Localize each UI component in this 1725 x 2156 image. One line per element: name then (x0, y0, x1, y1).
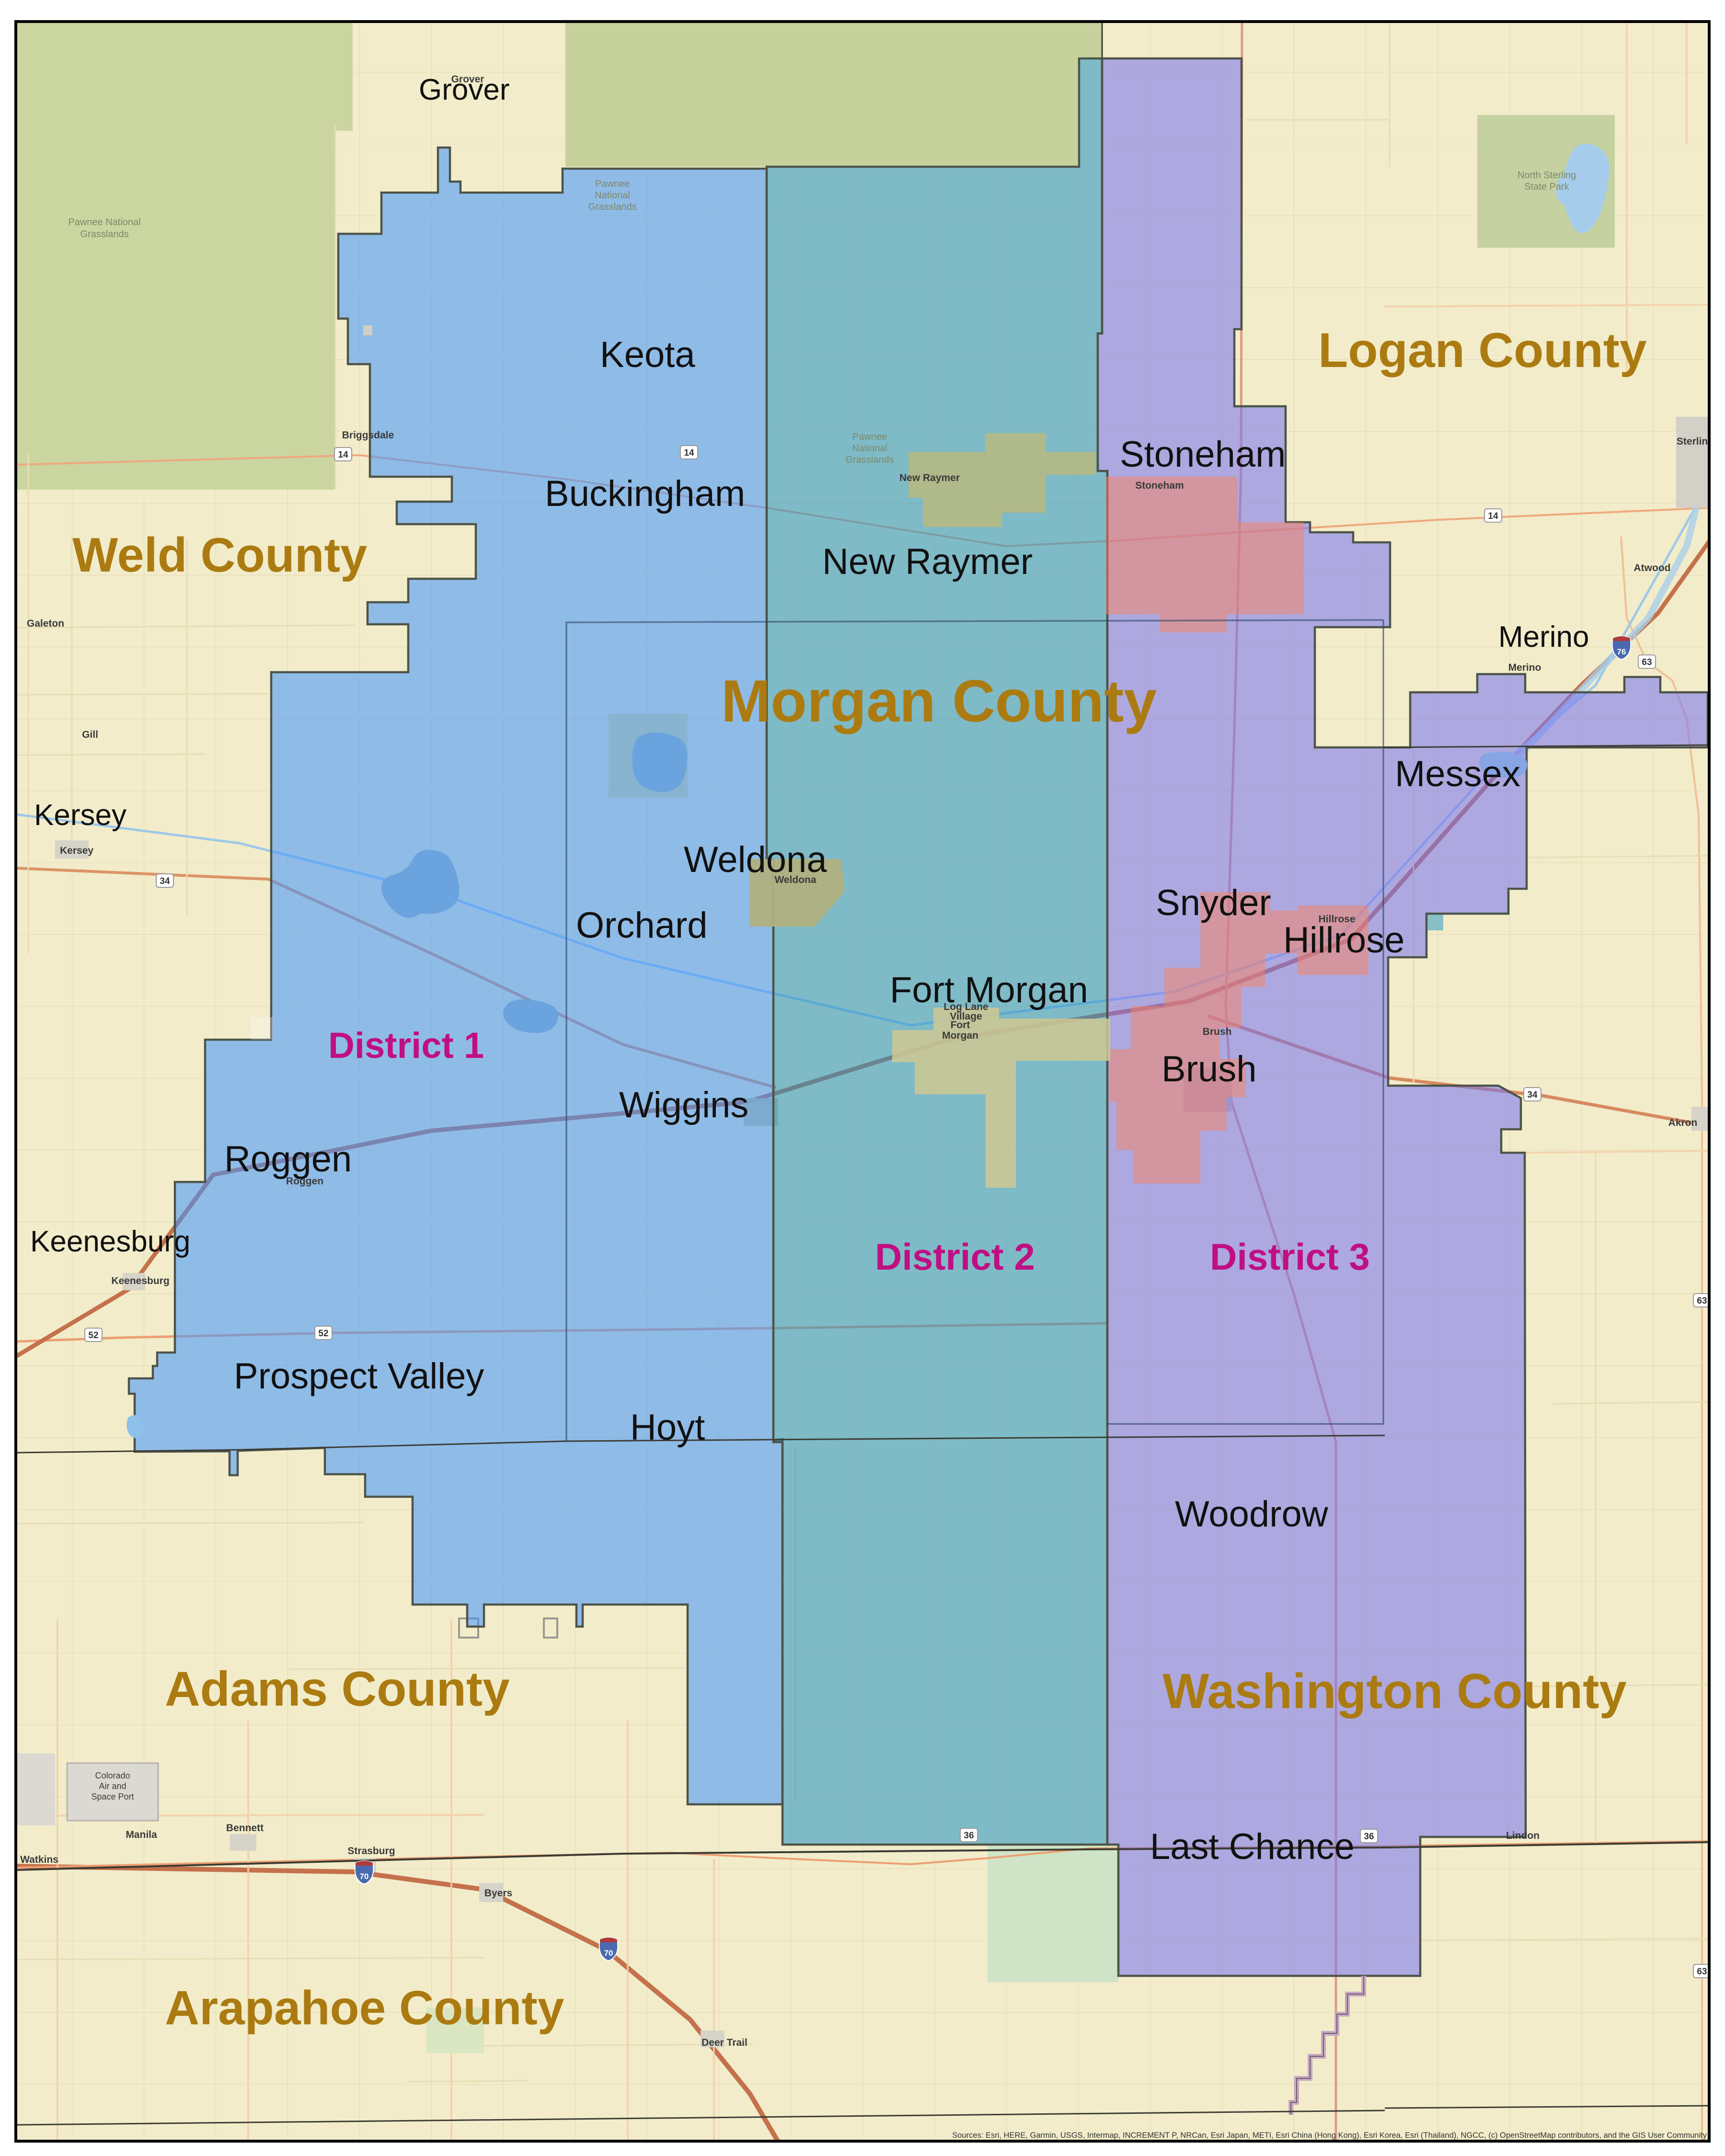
svg-text:63: 63 (1697, 1296, 1707, 1306)
svg-text:Pawnee: Pawnee (852, 432, 887, 442)
svg-text:Space Port: Space Port (91, 1792, 134, 1801)
svg-text:34: 34 (1527, 1090, 1538, 1100)
svg-text:Pawnee: Pawnee (595, 179, 630, 189)
svg-text:Brush: Brush (1203, 1026, 1232, 1037)
svg-text:Hoyt: Hoyt (630, 1407, 705, 1448)
svg-text:14: 14 (684, 448, 694, 458)
svg-text:Logan County: Logan County (1318, 323, 1647, 378)
svg-text:Gill: Gill (82, 729, 98, 740)
svg-text:Galeton: Galeton (27, 618, 64, 629)
svg-text:Grasslands: Grasslands (80, 229, 128, 240)
svg-text:Grasslands: Grasslands (588, 202, 636, 212)
svg-text:Merino: Merino (1508, 662, 1541, 673)
svg-text:Washington County: Washington County (1162, 1663, 1627, 1719)
svg-text:52: 52 (318, 1329, 328, 1339)
svg-text:63: 63 (1697, 1967, 1707, 1977)
svg-text:Watkins: Watkins (20, 1854, 58, 1865)
svg-text:Adams County: Adams County (165, 1662, 510, 1716)
svg-text:Keenesburg: Keenesburg (30, 1225, 190, 1258)
svg-text:National: National (852, 443, 887, 454)
svg-text:Stoneham: Stoneham (1120, 434, 1286, 475)
svg-text:Morgan: Morgan (942, 1030, 978, 1041)
svg-text:Wiggins: Wiggins (619, 1085, 748, 1125)
svg-text:Hillrose: Hillrose (1318, 914, 1355, 925)
svg-text:Keota: Keota (600, 334, 695, 375)
svg-text:Air and: Air and (99, 1781, 126, 1791)
svg-text:Brush: Brush (1161, 1049, 1257, 1089)
svg-text:State Park: State Park (1524, 182, 1569, 192)
svg-text:Fort Morgan: Fort Morgan (890, 970, 1088, 1010)
svg-text:Briggsdale: Briggsdale (342, 430, 394, 441)
svg-text:34: 34 (160, 876, 170, 886)
svg-text:Keenesburg: Keenesburg (111, 1275, 169, 1286)
svg-text:Roggen: Roggen (224, 1139, 352, 1180)
svg-text:Messex: Messex (1395, 754, 1520, 794)
svg-text:70: 70 (604, 1949, 613, 1958)
svg-text:63: 63 (1642, 657, 1652, 667)
svg-text:Pawnee National: Pawnee National (68, 217, 140, 228)
svg-text:Village: Village (950, 1011, 982, 1022)
svg-text:Colorado: Colorado (95, 1771, 130, 1780)
svg-text:Manila: Manila (126, 1829, 157, 1840)
svg-text:14: 14 (1488, 511, 1498, 521)
svg-text:Strasburg: Strasburg (347, 1846, 395, 1857)
svg-text:North Sterling: North Sterling (1518, 170, 1576, 181)
svg-text:National: National (595, 190, 630, 201)
svg-text:Kersey: Kersey (34, 799, 126, 832)
svg-text:Kersey: Kersey (60, 845, 93, 856)
svg-text:Weldona: Weldona (774, 874, 816, 885)
svg-text:36: 36 (1364, 1832, 1374, 1842)
svg-text:Hillrose: Hillrose (1283, 920, 1404, 961)
svg-text:14: 14 (338, 450, 348, 460)
svg-text:36: 36 (964, 1831, 974, 1841)
svg-text:Woodrow: Woodrow (1175, 1494, 1329, 1535)
svg-text:New Raymer: New Raymer (899, 472, 960, 483)
svg-text:Orchard: Orchard (576, 905, 708, 946)
svg-text:Grasslands: Grasslands (845, 455, 894, 465)
svg-text:Last Chance: Last Chance (1150, 1826, 1355, 1867)
svg-text:New Raymer: New Raymer (822, 541, 1033, 582)
svg-text:Weld County: Weld County (72, 528, 367, 582)
svg-text:Buckingham: Buckingham (545, 473, 745, 514)
svg-text:70: 70 (360, 1872, 369, 1881)
svg-text:Stoneham: Stoneham (1135, 480, 1184, 491)
svg-text:76: 76 (1617, 647, 1626, 656)
svg-text:District 1: District 1 (328, 1025, 484, 1066)
svg-text:Prospect Valley: Prospect Valley (234, 1356, 484, 1397)
svg-text:Bennett: Bennett (226, 1823, 264, 1834)
svg-text:Deer Trail: Deer Trail (701, 2037, 747, 2048)
svg-text:Arapahoe County: Arapahoe County (165, 1981, 564, 2035)
svg-text:Snyder: Snyder (1156, 883, 1271, 923)
svg-text:Akron: Akron (1668, 1117, 1698, 1128)
svg-text:52: 52 (88, 1330, 98, 1341)
svg-text:Merino: Merino (1498, 620, 1589, 654)
svg-text:District 2: District 2 (875, 1236, 1035, 1278)
svg-text:Byers: Byers (484, 1888, 512, 1899)
svg-text:Atwood: Atwood (1634, 562, 1671, 573)
svg-text:Morgan County: Morgan County (721, 668, 1157, 734)
svg-text:Roggen: Roggen (286, 1176, 323, 1187)
svg-text:Sources: Esri, HERE, Garmin, U: Sources: Esri, HERE, Garmin, USGS, Inter… (952, 2131, 1707, 2140)
svg-text:Lindon: Lindon (1506, 1830, 1540, 1841)
svg-text:District 3: District 3 (1210, 1236, 1370, 1278)
svg-text:Grover: Grover (451, 74, 484, 85)
